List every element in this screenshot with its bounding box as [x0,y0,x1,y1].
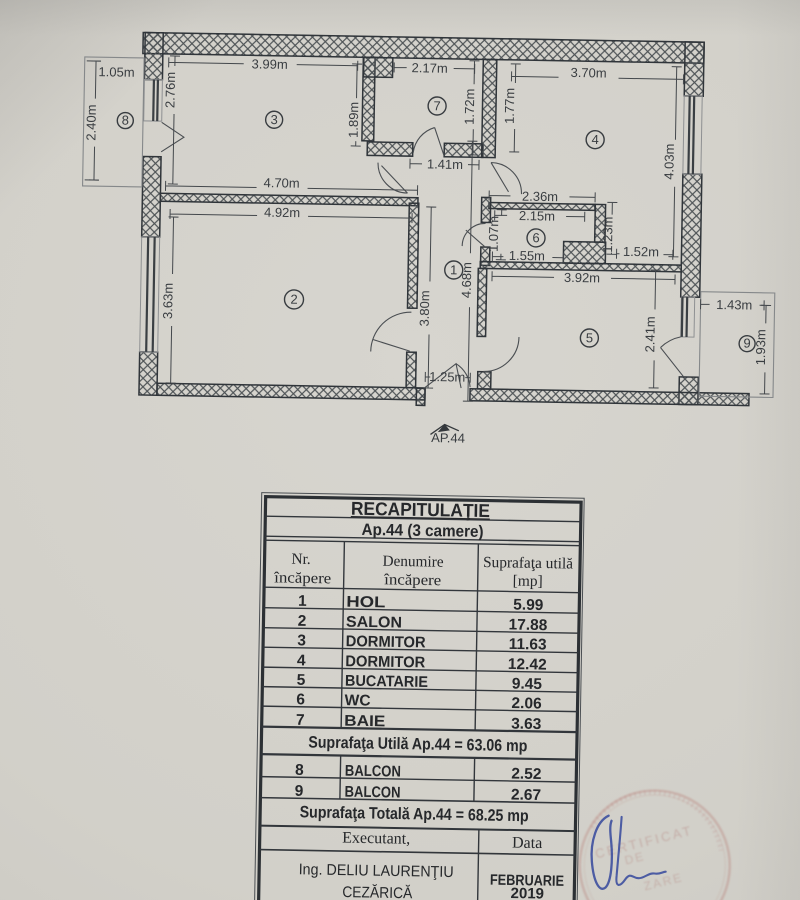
svg-text:1.41m: 1.41m [427,156,463,172]
svg-text:AP.44: AP.44 [431,430,465,446]
svg-text:2.41m: 2.41m [642,316,658,352]
svg-text:încăpere: încăpere [383,571,441,589]
svg-text:2.40m: 2.40m [83,104,99,140]
svg-text:încăpere: încăpere [273,569,331,587]
svg-text:1.93m: 1.93m [753,329,769,365]
svg-text:4: 4 [297,652,306,669]
svg-text:SALON: SALON [346,614,402,632]
svg-text:3.63m: 3.63m [160,283,176,319]
svg-text:Ing. DELIU LAURENŢIU: Ing. DELIU LAURENŢIU [299,861,454,881]
svg-text:Data: Data [512,835,542,853]
svg-text:7: 7 [433,98,440,113]
svg-text:4.68m: 4.68m [459,262,475,298]
svg-text:5: 5 [586,330,593,345]
svg-text:8: 8 [122,112,129,127]
svg-text:9: 9 [743,336,750,351]
svg-text:Ap.44 (3 camere): Ap.44 (3 camere) [361,521,483,541]
svg-text:2.76m: 2.76m [162,72,178,108]
svg-text:11.63: 11.63 [509,636,548,654]
svg-text:3: 3 [270,112,277,127]
svg-text:2.67: 2.67 [511,786,541,804]
svg-text:1.89m: 1.89m [346,102,362,138]
svg-text:3.63: 3.63 [511,715,542,733]
svg-text:17.88: 17.88 [508,616,547,634]
svg-text:4.03m: 4.03m [661,143,677,179]
svg-text:BUCATARIE: BUCATARIE [345,673,428,691]
svg-text:2.17m: 2.17m [411,60,447,76]
svg-text:1.43m: 1.43m [716,297,752,313]
svg-text:9.45: 9.45 [512,675,543,693]
svg-text:2.52: 2.52 [511,765,541,783]
svg-text:6: 6 [532,230,539,245]
svg-text:BALCON: BALCON [344,784,400,802]
svg-text:2: 2 [298,613,307,630]
svg-text:2: 2 [290,292,297,307]
svg-text:1.23m: 1.23m [600,216,616,252]
svg-text:Executant,: Executant, [342,830,410,848]
svg-text:4.92m: 4.92m [264,205,300,221]
svg-text:3.70m: 3.70m [570,65,606,81]
svg-text:3.99m: 3.99m [252,56,288,72]
svg-text:3: 3 [297,632,306,649]
svg-text:4.70m: 4.70m [263,175,299,191]
svg-text:5: 5 [297,672,306,689]
svg-text:5.99: 5.99 [513,597,544,615]
svg-text:12.42: 12.42 [508,656,547,674]
svg-text:9: 9 [295,783,304,800]
svg-text:2019: 2019 [510,885,544,900]
svg-text:BALCON: BALCON [345,763,401,781]
svg-text:2.36m: 2.36m [522,189,558,205]
svg-text:6: 6 [296,691,305,708]
svg-text:HOL: HOL [346,594,385,612]
svg-text:Suprafaţa Totală Ap.44 = 68.25: Suprafaţa Totală Ap.44 = 68.25 mp [300,803,529,825]
svg-text:CEZĂRICĂ: CEZĂRICĂ [342,884,413,900]
svg-text:3.80m: 3.80m [417,290,433,326]
svg-text:2.15m: 2.15m [519,208,555,224]
svg-text:Denumire: Denumire [382,553,443,571]
svg-text:DORMITOR: DORMITOR [345,633,425,651]
svg-text:Suprafaţa Utilă Ap.44 = 63.06: Suprafaţa Utilă Ap.44 = 63.06 mp [308,733,527,755]
svg-text:4: 4 [591,132,598,147]
svg-text:1: 1 [450,262,457,277]
svg-text:DORMITOR: DORMITOR [345,653,425,671]
svg-text:BAIE: BAIE [344,713,385,731]
svg-text:3.92m: 3.92m [564,270,600,286]
svg-text:2.06: 2.06 [511,695,542,713]
svg-text:Suprafaţa utilă: Suprafaţa utilă [483,554,573,573]
svg-text:1.77m: 1.77m [502,88,518,124]
svg-text:1.52m: 1.52m [623,244,659,260]
svg-text:8: 8 [295,762,304,779]
svg-text:1.25m: 1.25m [429,369,465,385]
svg-text:1: 1 [298,593,307,610]
svg-text:1.55m: 1.55m [509,248,545,264]
svg-text:1.07m: 1.07m [486,216,502,252]
svg-text:[mp]: [mp] [513,572,543,590]
svg-text:WC: WC [344,692,370,709]
svg-text:1.05m: 1.05m [98,64,134,80]
svg-text:7: 7 [296,712,305,729]
svg-text:1.72m: 1.72m [462,88,478,124]
svg-text:Nr.: Nr. [291,551,311,568]
